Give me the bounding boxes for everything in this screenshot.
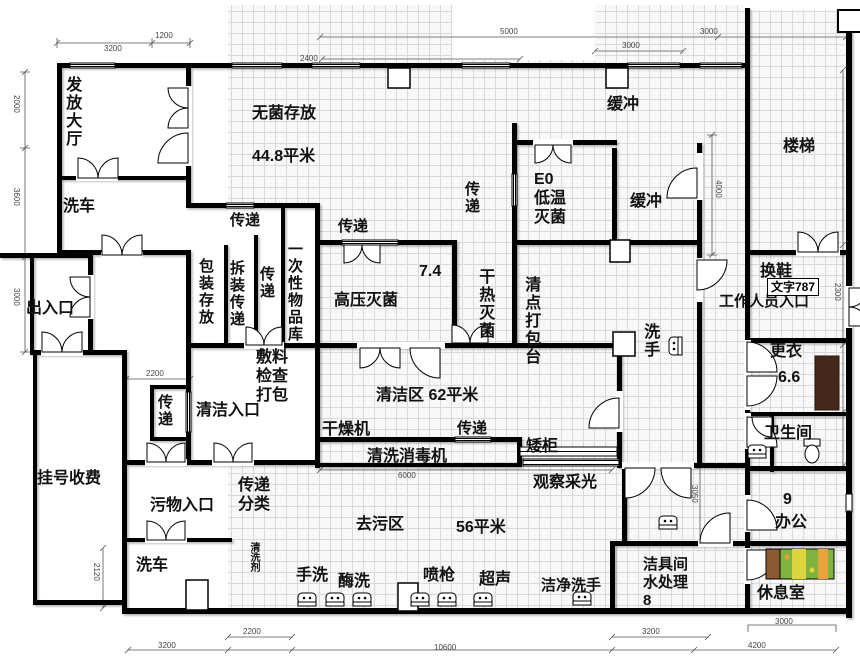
- equip-label-low-cabinet: 矮柜: [526, 437, 558, 456]
- dim-mid-6000: 6000: [398, 471, 416, 480]
- floor-plan: 发放大厅 洗车 无菌存放 44.8平米 缓冲 楼梯 传递 E0 低温 灭菌 缓冲…: [0, 0, 860, 667]
- label-hand-wash: 手洗: [296, 566, 328, 585]
- toilet-sink: [748, 445, 766, 458]
- label-clean-hand-wash: 洁净洗手: [541, 577, 601, 595]
- room-label-cart-wash-top: 洗车: [63, 197, 95, 216]
- value-7-4: 7.4: [419, 262, 441, 281]
- room-label-disposable-store: 一次性物品库: [285, 241, 303, 343]
- room-label-detergent: 清洗剂: [247, 542, 259, 572]
- sink-hand-wash-clean: [669, 337, 682, 355]
- pass-label-eo: 传递: [462, 181, 480, 215]
- dim-top-3000-b: 3000: [622, 41, 640, 50]
- dim-top-2400: 2400: [300, 54, 318, 63]
- room-area-sterile-storage: 44.8平米: [252, 147, 315, 166]
- sink: [659, 516, 677, 529]
- dim-bottom-4200: 4200: [748, 641, 766, 650]
- dim-top-3000-a: 3000: [700, 27, 718, 36]
- room-label-entrance-exit: 出入口: [26, 299, 74, 318]
- label-hand-wash-clean: 洗手: [640, 323, 659, 359]
- selected-text-entity[interactable]: 文字787: [767, 278, 819, 296]
- room-label-dismantle-pass: 拆装传递: [227, 260, 245, 328]
- dim-right-2300: 2300: [833, 283, 842, 301]
- label-enzyme-wash: 酶洗: [338, 572, 370, 591]
- equip-label-washer-disinfector: 清洗消毒机: [367, 447, 447, 466]
- dim-mid-2200: 2200: [146, 369, 164, 378]
- room-label-changing: 更衣: [770, 342, 802, 361]
- room-label-dirty-entry: 污物入口: [150, 496, 214, 515]
- pass-label-top-left: 传递: [230, 212, 260, 230]
- pass-label-cluster: 传递: [257, 266, 275, 300]
- value-6-6: 6.6: [778, 368, 800, 387]
- dim-left-2120: 2120: [92, 563, 101, 581]
- dim-top-3200: 3200: [104, 44, 122, 53]
- room-label-packing-storage: 包装存放: [196, 258, 214, 326]
- sink: [474, 593, 492, 606]
- room-label-cart-wash-bottom: 洗车: [136, 556, 168, 575]
- room-label-issue-hall: 发放大厅: [62, 76, 81, 148]
- dim-bottom-3000: 3000: [775, 617, 793, 626]
- rest-room-bed: [766, 549, 834, 579]
- changing-bench: [815, 356, 839, 410]
- room-label-dry-heat: 干热灭菌: [475, 268, 494, 340]
- dim-left-3600: 3600: [12, 188, 21, 206]
- room-label-stairs: 楼梯: [783, 137, 815, 156]
- room-label-mop-water: 洁具间 水处理 8: [643, 556, 688, 610]
- label-ultrasonic: 超声: [479, 570, 511, 589]
- dim-left-3000: 3000: [12, 288, 21, 306]
- dim-right-3050: 3050: [690, 485, 699, 503]
- dim-left-2000: 2000: [12, 95, 21, 113]
- equip-label-dryer: 干燥机: [322, 420, 370, 439]
- room-label-eo-sterilizer: E0 低温 灭菌: [534, 170, 566, 228]
- room-label-dressing-check-pack: 敷料 检查 打包: [256, 348, 288, 406]
- room-label-buffer-right: 缓冲: [630, 192, 662, 211]
- room-label-checkin-pack-table: 清点打包台: [521, 276, 540, 366]
- pass-label-mid: 传递: [457, 420, 487, 438]
- dim-top-5000: 5000: [500, 27, 518, 36]
- pass-label-left-niche: 传递: [155, 394, 173, 428]
- dim-bottom-3200-a: 3200: [158, 641, 176, 650]
- room-label-buffer-top: 缓冲: [607, 95, 639, 114]
- room-area-decontam: 56平米: [456, 518, 506, 537]
- sink-enzyme: [326, 593, 344, 606]
- label-spray-gun: 喷枪: [423, 566, 455, 585]
- room-label-registration: 挂号收费: [37, 469, 101, 488]
- dim-bottom-2200: 2200: [243, 627, 261, 636]
- room-label-office: 办公: [775, 513, 807, 532]
- room-label-decontam-zone: 去污区: [356, 515, 404, 534]
- value-9: 9: [783, 490, 792, 509]
- pass-label-top-mid: 传递: [338, 218, 368, 236]
- room-label-clean-zone: 清洁区 62平米: [376, 386, 478, 405]
- sink-spray: [411, 593, 429, 606]
- room-label-high-pressure: 高压灭菌: [334, 291, 398, 310]
- room-label-clean-entry: 清洁入口: [196, 401, 260, 420]
- sink: [353, 593, 371, 606]
- label-observe-light: 观察采光: [533, 473, 597, 492]
- dim-bottom-3200-b: 3200: [642, 627, 660, 636]
- room-label-pass-sort: 传递 分类: [238, 476, 270, 514]
- column: [838, 10, 860, 32]
- sink-hand-wash: [298, 593, 316, 606]
- dim-bottom-10600: 10600: [434, 643, 456, 652]
- room-label-sterile-storage: 无菌存放: [252, 104, 316, 123]
- room-label-rest-room: 休息室: [757, 584, 805, 603]
- dim-right-4000: 4000: [714, 180, 723, 198]
- room-label-toilet: 卫生间: [764, 424, 812, 443]
- dim-top-1200: 1200: [155, 31, 173, 40]
- sink-ultrasonic: [438, 593, 456, 606]
